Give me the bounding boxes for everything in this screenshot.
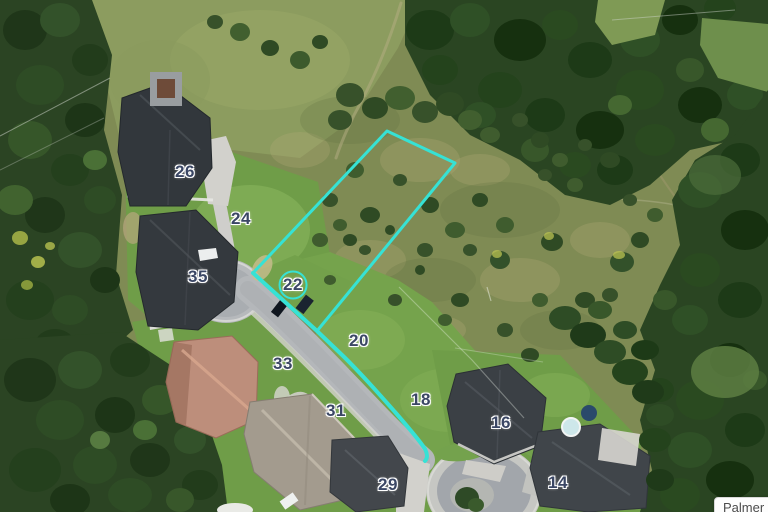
lot-number-label[interactable]: 33	[273, 354, 293, 374]
lot-number-label[interactable]: 24	[231, 209, 251, 229]
street-name-text: Palmer	[723, 500, 764, 512]
lot-number-label[interactable]: 16	[491, 413, 511, 433]
map-canvas[interactable]: 2624352220331831162914 Palmer	[0, 0, 768, 512]
lot-number-label[interactable]: 14	[548, 473, 568, 493]
lot-number-label[interactable]: 31	[326, 401, 346, 421]
pool	[562, 418, 580, 436]
lot-number-label[interactable]: 20	[349, 331, 369, 351]
lot-number-label[interactable]: 26	[175, 162, 195, 182]
aerial-imagery	[0, 0, 768, 512]
house-14	[530, 424, 650, 512]
selected-lot-marker[interactable]: 22	[283, 275, 303, 295]
lot-number-label[interactable]: 35	[188, 267, 208, 287]
trampoline	[581, 405, 597, 421]
lot-number-label[interactable]: 29	[378, 475, 398, 495]
lot-number-label[interactable]: 18	[411, 390, 431, 410]
deck	[598, 428, 640, 466]
house-33	[166, 336, 258, 438]
street-name-label: Palmer	[714, 497, 768, 512]
